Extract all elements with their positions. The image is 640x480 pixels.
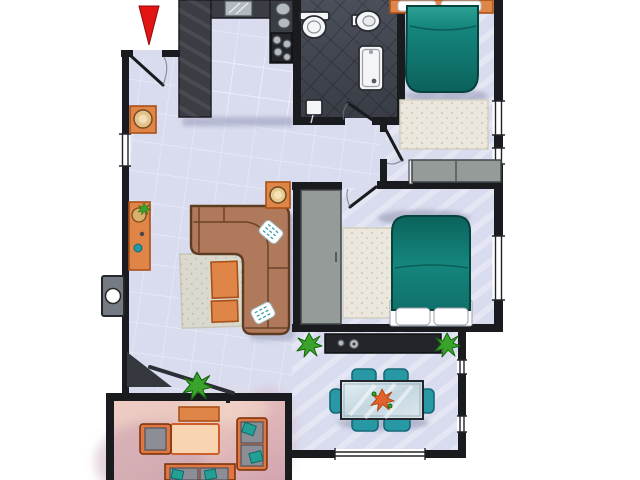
burner-1 [273,36,281,44]
balcony-dining-wall [285,396,292,480]
shower-tray [359,46,383,90]
burner-3 [274,48,282,56]
bed1-duvet [406,6,478,92]
bed2-rug [343,228,394,318]
floor-plan-canvas [0,0,640,480]
sofa-pillow-b [204,469,216,480]
window-dining-right-a [457,360,467,374]
window-bedroom2 [492,236,505,300]
balcony-armchair [140,424,171,454]
entry-wall-right-stub [162,50,180,57]
kitchen-pass-tiles [270,63,293,118]
bedroom1-wall-lower [380,159,387,186]
window-left-wall [119,134,131,166]
balcony-top-wall [106,393,292,401]
balcony-bench [179,407,219,421]
bed1-rug [400,100,488,149]
balcony-loveseat [237,418,267,470]
outside-left [0,0,122,480]
exterior-utility-box [102,276,124,316]
balcony-sofa [165,464,235,480]
floor-plan-page [0,0,640,480]
console-table [129,202,151,270]
burner-4 [284,54,291,61]
outside-right [503,0,640,480]
bathroom-bottom-wall [293,117,345,125]
kitchen-shadow [183,117,293,126]
bed2-wardrobe [301,190,341,324]
kettle-icon [278,18,290,28]
centerpiece-leaf-1 [372,392,376,396]
bedroom2-left-wall [293,182,301,324]
kitchen-counter-texture [179,0,211,117]
burner-2 [283,40,291,48]
side-table-lamp [266,182,290,208]
entry-stool [130,106,156,133]
sideboard-knob-dot [353,343,356,346]
balcony-left-wall [106,393,114,480]
pot-icon [276,3,290,15]
window-dining-bottom [335,448,425,460]
balcony-table [171,424,219,454]
bed2-duvet [392,216,470,310]
outside-dining-right [466,332,503,458]
ottoman-1 [211,261,238,298]
bed2-pillow-right [434,308,468,325]
window-dining-right-b [457,416,467,432]
sideboard-knob-1 [338,340,344,346]
kitchen-tiles [211,18,270,118]
sofa-pillow-a [171,469,184,480]
centerpiece-leaf-2 [388,404,392,408]
living-rug [180,252,253,328]
ottoman-2 [211,300,238,322]
window-bedroom1-a [492,101,505,135]
bedrooms-divider-left [292,182,342,190]
left-exterior-wall [122,50,129,396]
hallway-tiles [293,118,380,182]
bed2-pillow-left [396,308,430,325]
outside-bottom [292,458,640,480]
dining-right-wall [458,332,466,458]
dining-table [341,381,423,419]
